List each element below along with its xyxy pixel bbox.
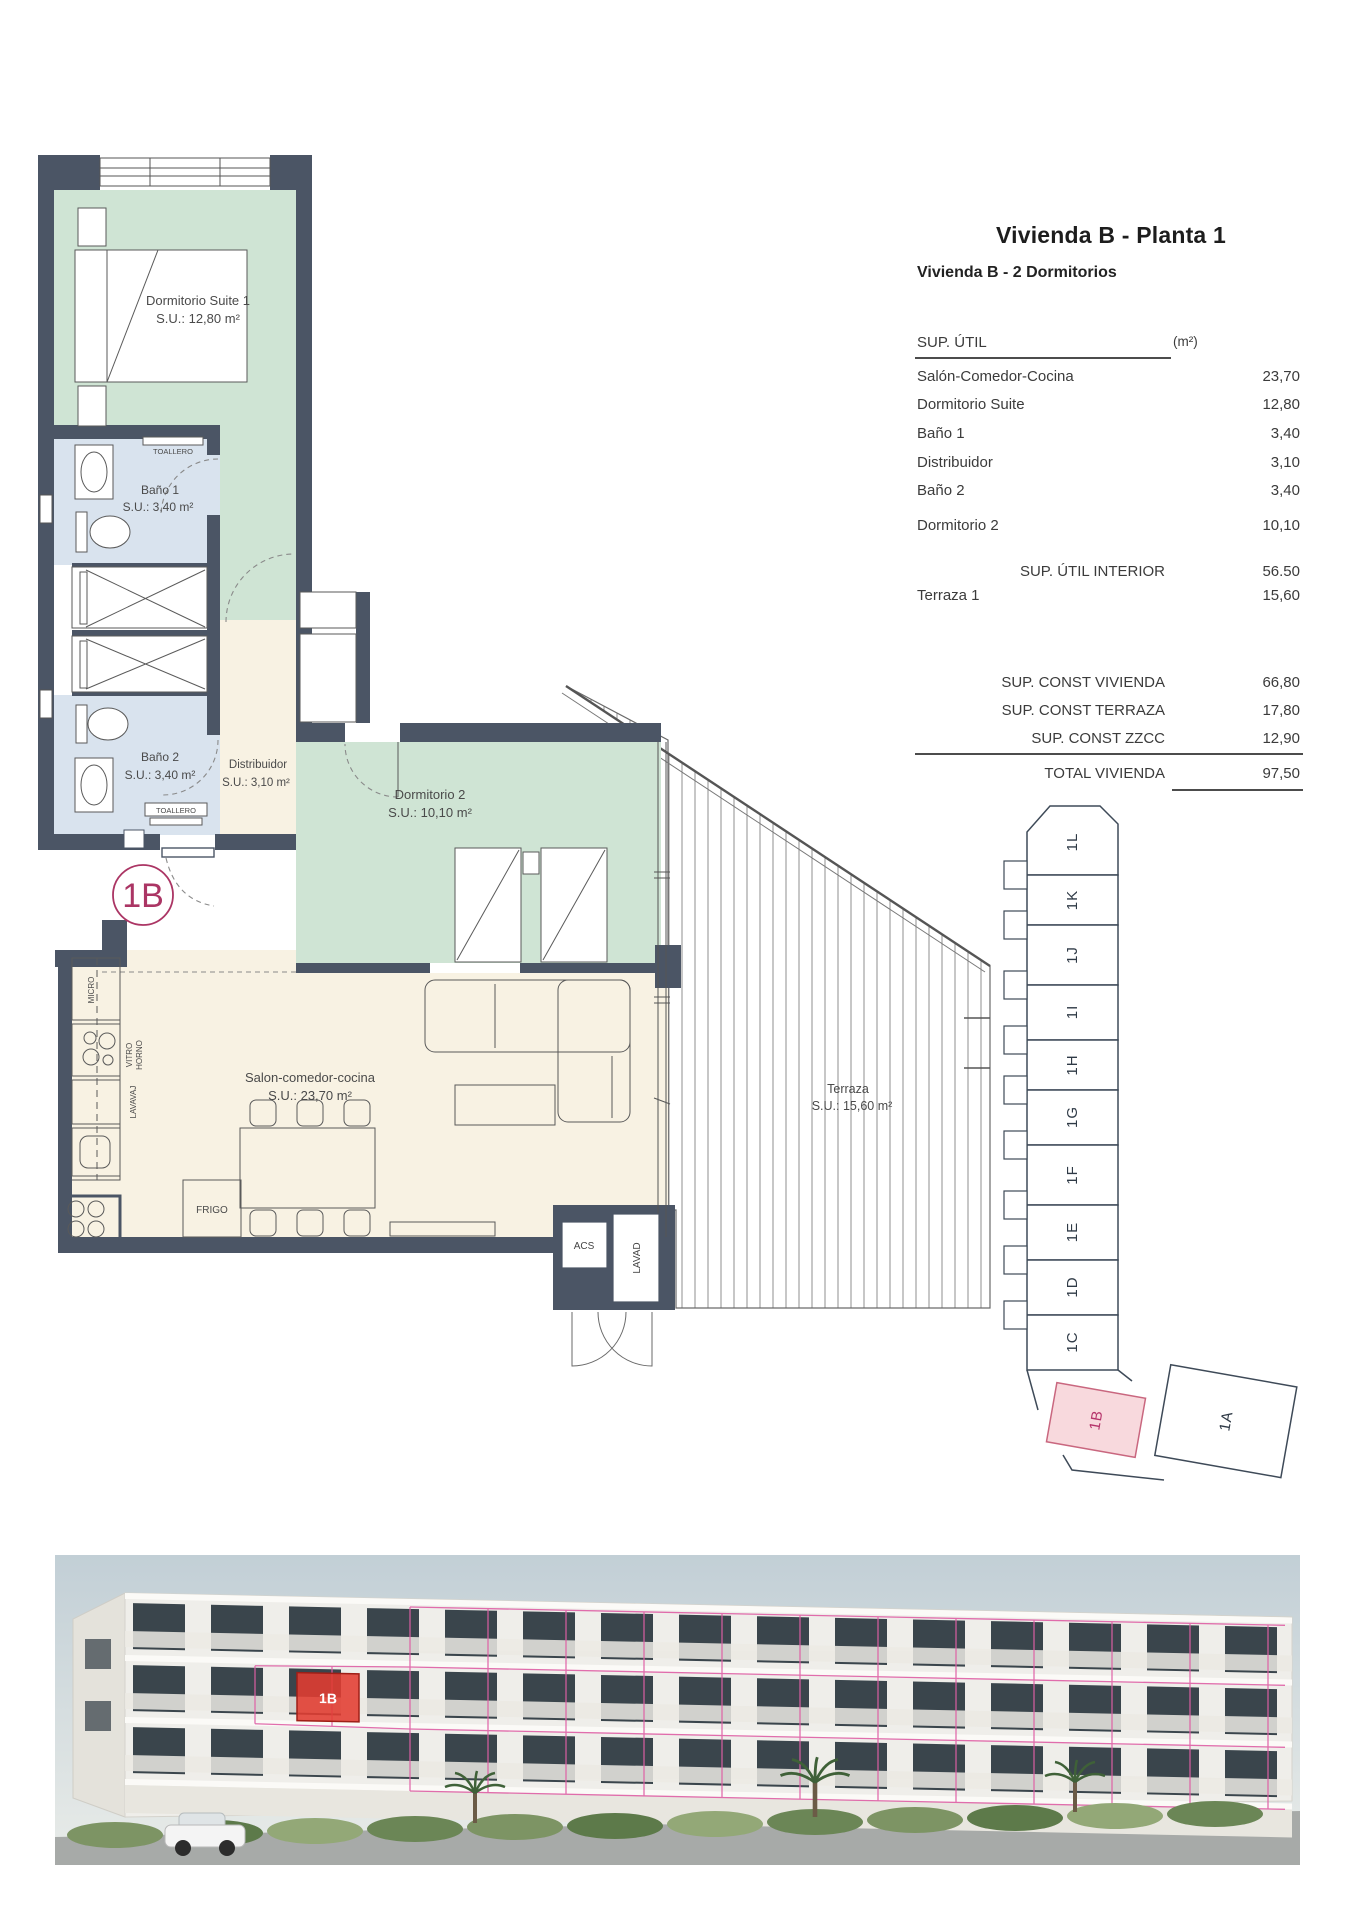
photo-highlight-1b: 1B bbox=[297, 1673, 359, 1722]
suite-name: Dormitorio Suite 1 bbox=[146, 293, 250, 308]
building-render-photo: 1B bbox=[55, 1555, 1300, 1865]
photo-highlight-label: 1B bbox=[319, 1690, 337, 1706]
horno-label: HORNO bbox=[135, 1040, 144, 1070]
closets bbox=[300, 592, 356, 722]
bano2-area: S.U.: 3,40 m² bbox=[125, 768, 196, 782]
distribuidor-name: Distribuidor bbox=[229, 759, 287, 771]
room-distribuidor-fill bbox=[220, 620, 296, 848]
toallero-label: TOALLERO bbox=[153, 447, 193, 456]
keyplan-label: 1J bbox=[1064, 946, 1081, 964]
keyplan bbox=[1004, 806, 1297, 1480]
wing-window bbox=[85, 1701, 111, 1731]
lavad-label: LAVAD bbox=[632, 1242, 643, 1273]
floorplan-drawing: ACS LAVAD Dormitorio Suite 1 S.U.: 12,80… bbox=[0, 0, 1356, 1540]
room-corridor-fill bbox=[220, 425, 296, 620]
micro-label: MICRO bbox=[87, 977, 96, 1004]
keyplan-label: 1E bbox=[1064, 1222, 1081, 1242]
wall-niche bbox=[124, 830, 144, 848]
unit-badge-label: 1B bbox=[122, 877, 164, 915]
facade-detail: 1B bbox=[125, 1593, 1292, 1837]
lavavaj-label: LAVAVAJ bbox=[129, 1086, 138, 1119]
suite-area: S.U.: 12,80 m² bbox=[156, 311, 240, 326]
acs-label: ACS bbox=[574, 1241, 595, 1252]
salon-name: Salon-comedor-cocina bbox=[245, 1070, 376, 1085]
keyplan-label: 1H bbox=[1064, 1054, 1081, 1075]
dorm2-area: S.U.: 10,10 m² bbox=[388, 805, 472, 820]
salon-area: S.U.: 23,70 m² bbox=[268, 1088, 352, 1103]
keyplan-label: 1F bbox=[1064, 1165, 1081, 1185]
keyplan-label: 1G bbox=[1064, 1106, 1081, 1128]
distribuidor-area: S.U.: 3,10 m² bbox=[222, 777, 290, 789]
frigo-label: FRIGO bbox=[196, 1205, 228, 1216]
bano1-name: Baño 1 bbox=[141, 483, 179, 497]
terraza-name: Terraza bbox=[827, 1082, 869, 1096]
terraza-area: S.U.: 15,60 m² bbox=[812, 1099, 893, 1113]
wing-window bbox=[85, 1639, 111, 1669]
keyplan-label: 1K bbox=[1064, 890, 1081, 910]
plan-sheet-page: { "header": { "title": "Vivienda B - Pla… bbox=[0, 0, 1356, 1920]
toallero-label: TOALLERO bbox=[156, 806, 196, 815]
terrace-doors bbox=[572, 1312, 652, 1366]
keyplan-label: 1L bbox=[1064, 833, 1081, 852]
entrance-door-leaf bbox=[162, 848, 214, 857]
keyplan-label: 1I bbox=[1064, 1005, 1081, 1020]
dorm2-name: Dormitorio 2 bbox=[395, 787, 466, 802]
keyplan-label: 1C bbox=[1064, 1331, 1081, 1352]
unit-badge: 1B bbox=[113, 865, 173, 925]
bano2-name: Baño 2 bbox=[141, 750, 179, 764]
vitro-label: VITRO bbox=[125, 1043, 134, 1067]
keyplan-label-1b: 1B bbox=[1086, 1409, 1106, 1432]
keyplan-label-1a: 1A bbox=[1216, 1410, 1236, 1433]
keyplan-label: 1D bbox=[1064, 1276, 1081, 1297]
bano1-area: S.U.: 3,40 m² bbox=[123, 500, 194, 514]
keyplan-notches bbox=[1004, 861, 1027, 1329]
wardrobes bbox=[72, 567, 207, 692]
